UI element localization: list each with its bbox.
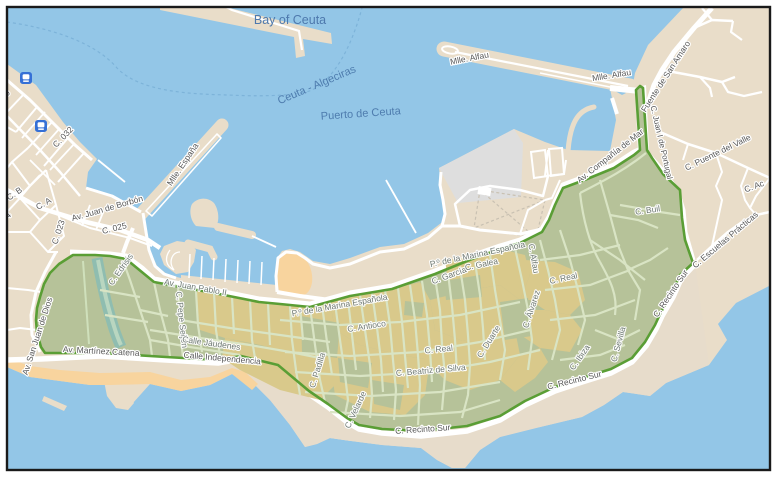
svg-text:Bay of Ceuta: Bay of Ceuta: [254, 13, 326, 27]
